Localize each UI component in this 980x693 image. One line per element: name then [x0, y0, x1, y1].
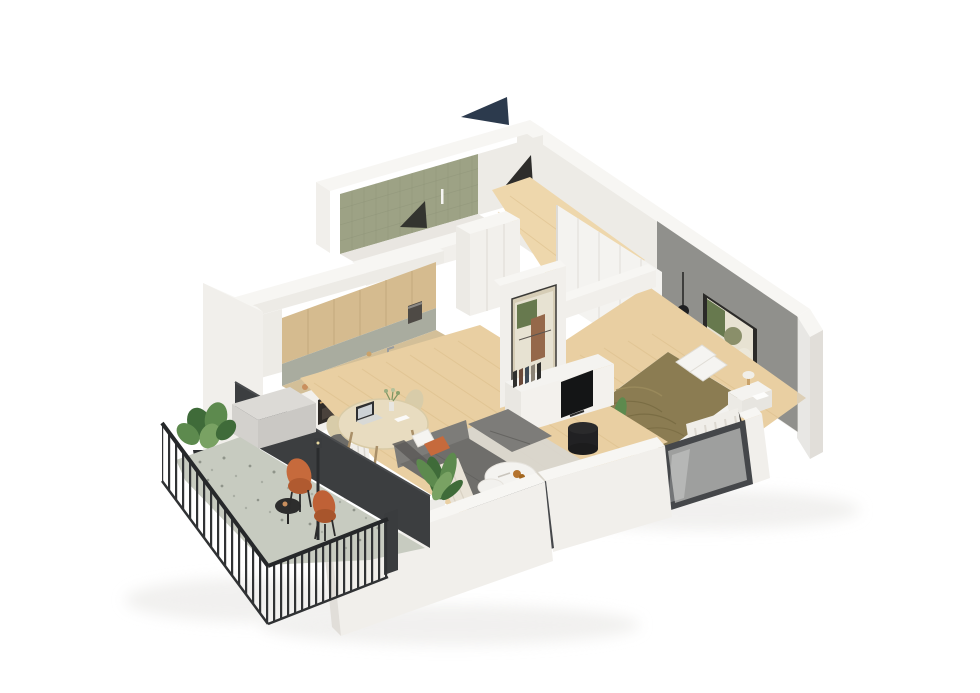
east-corner-wall: [797, 309, 823, 459]
bathroom-outer-wall-face: [316, 182, 330, 253]
vase: [389, 402, 394, 411]
drum-lamp: [568, 422, 598, 455]
shower-fixture: [441, 189, 444, 204]
north-arrow-icon: [461, 97, 509, 125]
apartment-isometric-scene: 3D isometric cutaway rendering of a one-…: [0, 0, 980, 693]
table-lamp-shade: [743, 371, 755, 379]
floorplan-render: 3D isometric cutaway rendering of a one-…: [0, 0, 980, 693]
jar: [367, 352, 372, 357]
